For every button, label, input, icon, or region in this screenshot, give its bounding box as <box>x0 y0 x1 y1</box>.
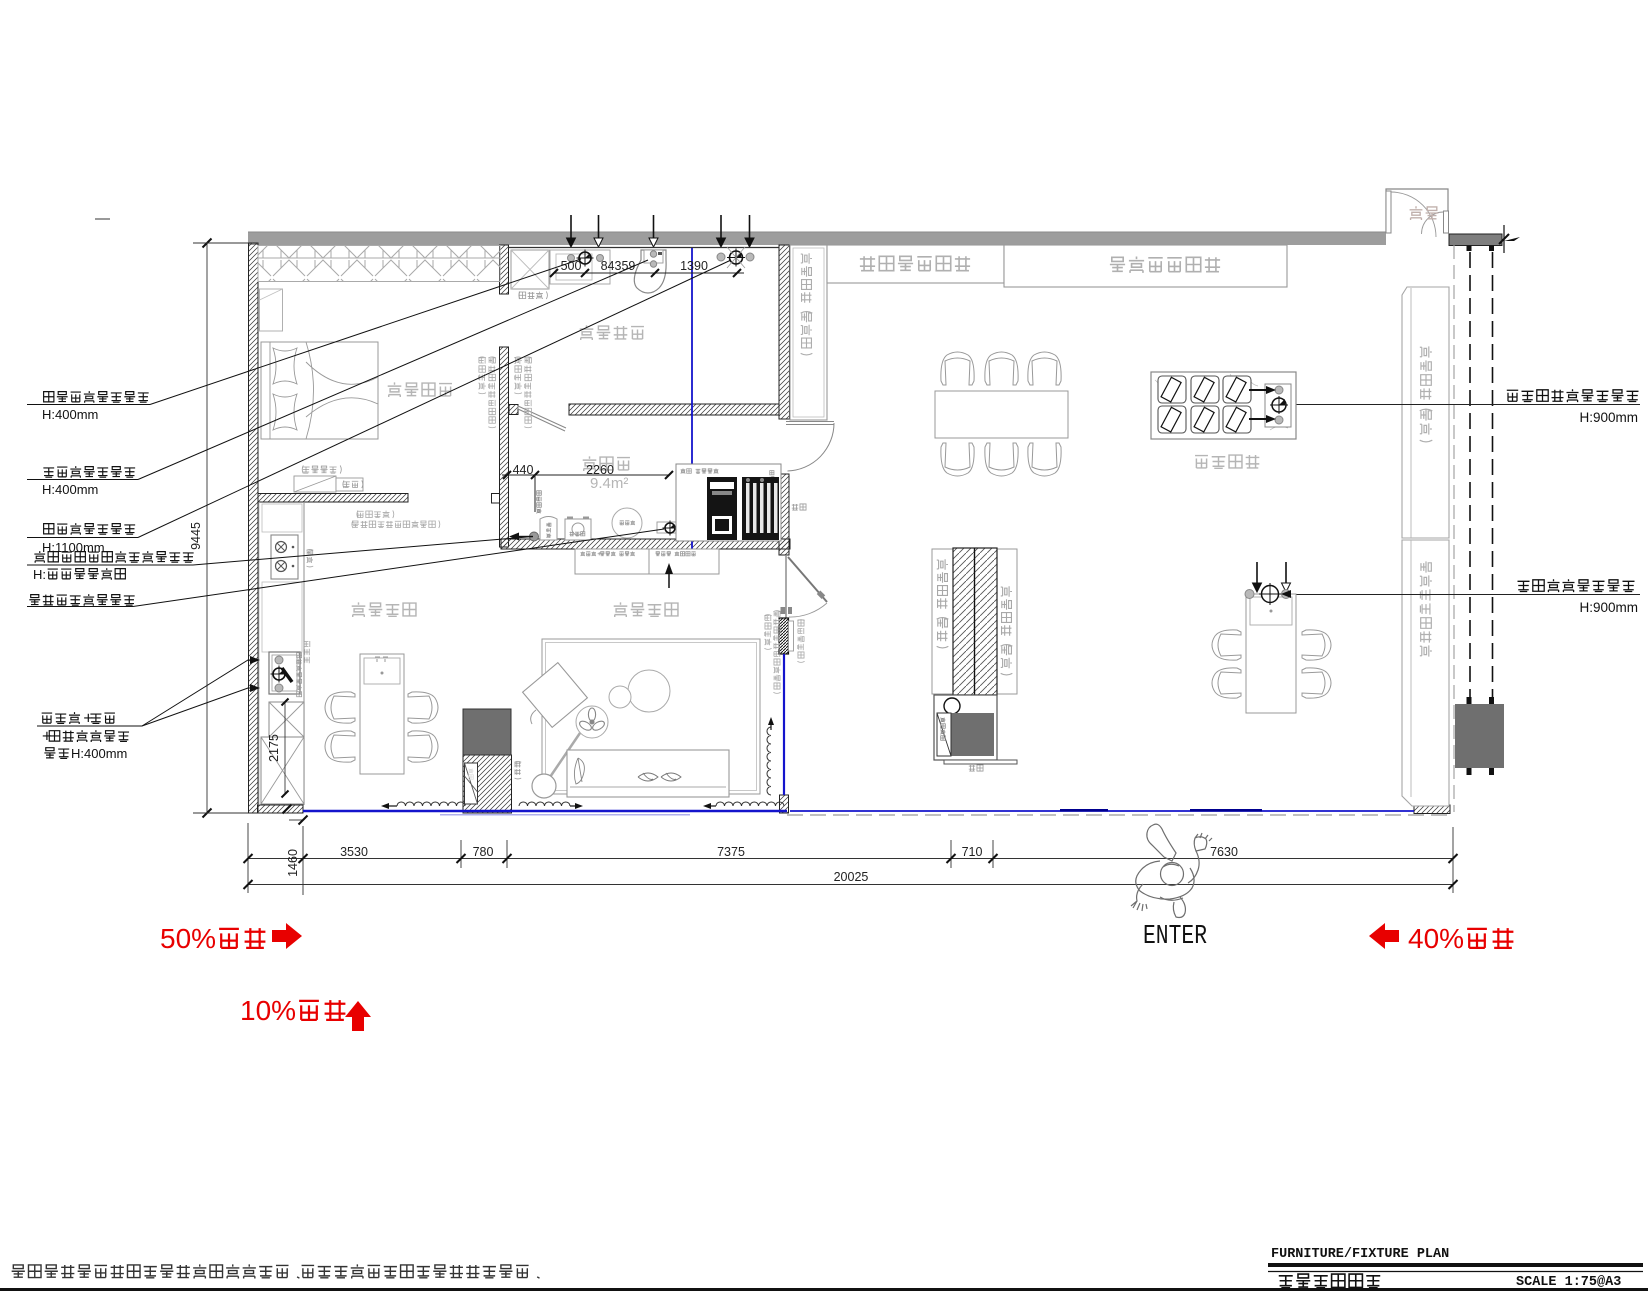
svg-text:500: 500 <box>561 259 582 273</box>
svg-text:9.4m²: 9.4m² <box>590 475 628 492</box>
svg-text:H:400mm: H:400mm <box>42 407 98 422</box>
svg-text:9445: 9445 <box>189 522 203 550</box>
svg-text:710: 710 <box>962 845 983 859</box>
svg-text:1460: 1460 <box>286 849 300 877</box>
svg-text:780: 780 <box>473 845 494 859</box>
svg-text:20025: 20025 <box>834 870 869 884</box>
svg-text:2175: 2175 <box>267 734 281 762</box>
svg-text:1390: 1390 <box>680 259 708 273</box>
svg-text:10%: 10% <box>240 995 296 1026</box>
svg-text:7630: 7630 <box>1210 845 1238 859</box>
svg-text:84359: 84359 <box>601 259 636 273</box>
svg-text:40%: 40% <box>1408 923 1464 954</box>
svg-text:50%: 50% <box>160 923 216 954</box>
svg-text:H:: H: <box>33 567 46 582</box>
svg-text:H:400mm: H:400mm <box>42 482 98 497</box>
svg-text:7375: 7375 <box>717 845 745 859</box>
svg-text:H:900mm: H:900mm <box>1579 600 1638 615</box>
svg-text:SCALE 1:75@A3: SCALE 1:75@A3 <box>1516 1275 1621 1290</box>
svg-text:ENTER: ENTER <box>1143 922 1207 952</box>
svg-text:H:900mm: H:900mm <box>1579 410 1638 425</box>
svg-text:3530: 3530 <box>340 845 368 859</box>
svg-text:H:1100mm: H:1100mm <box>42 540 105 555</box>
svg-text:FURNITURE/FIXTURE PLAN: FURNITURE/FIXTURE PLAN <box>1271 1247 1449 1262</box>
svg-text:H:400mm: H:400mm <box>71 746 127 761</box>
svg-text:440: 440 <box>513 463 534 477</box>
svg-text:2260: 2260 <box>586 463 614 477</box>
